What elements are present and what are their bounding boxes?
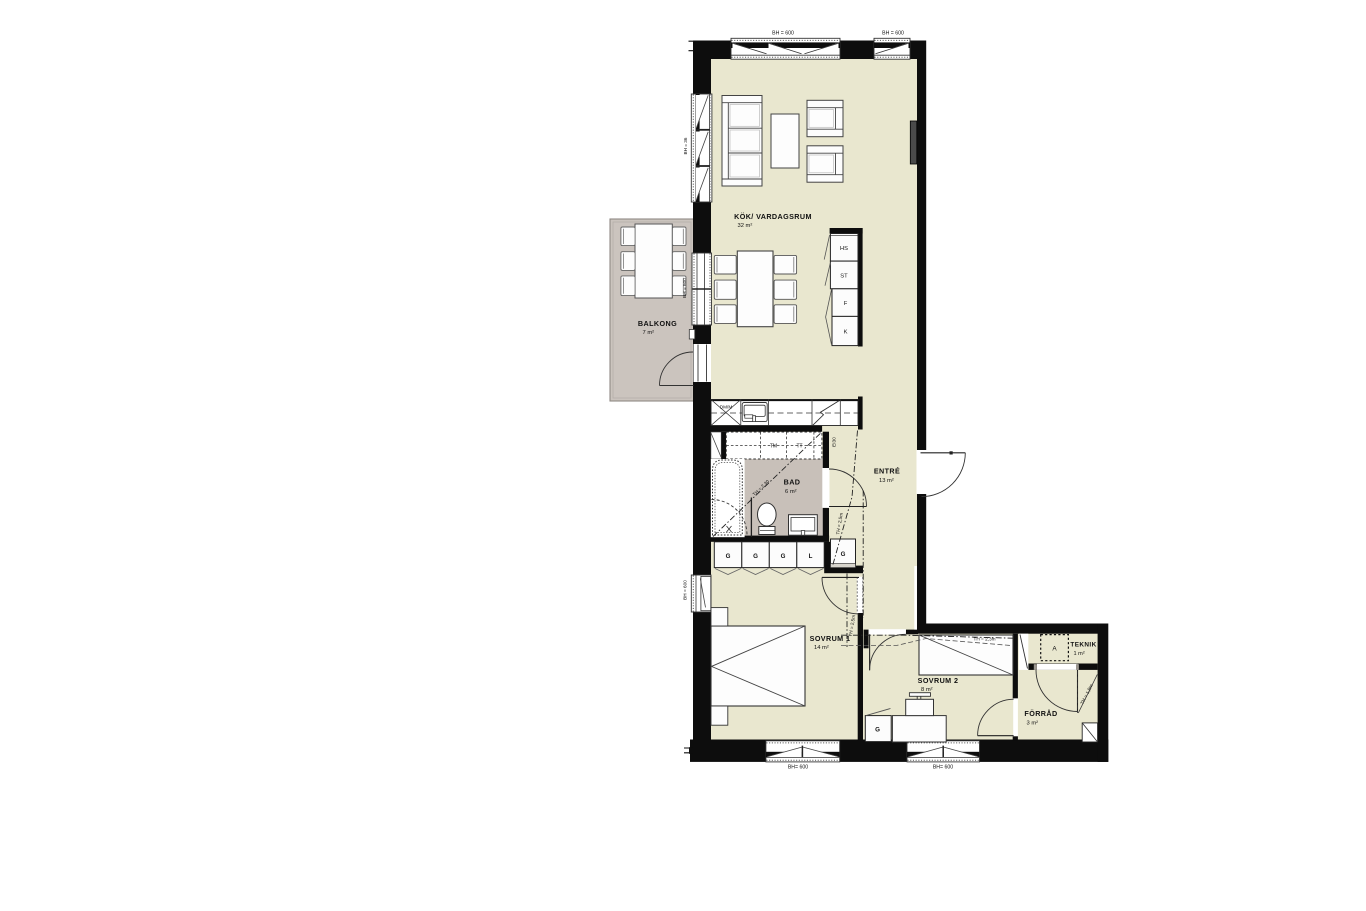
svg-text:SOVRUM 2: SOVRUM 2 (918, 676, 959, 685)
svg-text:DM/M: DM/M (720, 405, 733, 410)
svg-text:13 m²: 13 m² (879, 478, 894, 484)
svg-text:BH = 600: BH = 600 (882, 31, 904, 37)
svg-text:ST: ST (840, 274, 848, 280)
svg-text:32 m²: 32 m² (738, 223, 753, 229)
svg-text:6 m²: 6 m² (785, 489, 797, 495)
svg-text:HS: HS (840, 246, 848, 252)
svg-text:EI30: EI30 (832, 437, 837, 447)
svg-text:BH= 600: BH= 600 (933, 765, 953, 771)
svg-text:L: L (809, 553, 813, 560)
svg-text:TEKNIK: TEKNIK (1070, 642, 1096, 649)
svg-text:BH = 600: BH = 600 (682, 278, 687, 298)
svg-text:G: G (841, 551, 846, 558)
svg-text:BALKONG: BALKONG (638, 319, 677, 328)
svg-text:BH = 600: BH = 600 (772, 31, 794, 37)
svg-text:ENTRÉ: ENTRÉ (874, 467, 900, 476)
svg-text:G: G (875, 727, 880, 734)
svg-text:BH= 600: BH= 600 (788, 765, 808, 771)
svg-text:G: G (781, 553, 786, 560)
svg-text:BAD: BAD (784, 478, 801, 487)
svg-text:G: G (726, 553, 731, 560)
svg-text:TM: TM (770, 443, 777, 449)
svg-text:K: K (844, 330, 848, 336)
svg-text:14 m²: 14 m² (814, 645, 829, 651)
svg-text:TT: TT (796, 443, 802, 449)
svg-text:F: F (844, 301, 848, 307)
svg-text:8 m²: 8 m² (921, 687, 933, 693)
svg-text:BH = 36: BH = 36 (683, 137, 688, 154)
svg-text:SOVRUM 1: SOVRUM 1 (810, 634, 851, 643)
svg-text:FÖRRÅD: FÖRRÅD (1024, 709, 1057, 718)
svg-text:G: G (753, 553, 758, 560)
svg-text:TH = 2,3m: TH = 2,3m (973, 637, 995, 642)
svg-text:3 m²: 3 m² (1027, 721, 1039, 727)
svg-text:KÖK/ VARDAGSRUM: KÖK/ VARDAGSRUM (734, 212, 812, 221)
svg-text:BH = 600: BH = 600 (683, 580, 688, 600)
svg-text:1 m²: 1 m² (1074, 651, 1085, 657)
svg-text:7 m²: 7 m² (643, 330, 655, 336)
svg-text:A: A (1052, 646, 1057, 653)
